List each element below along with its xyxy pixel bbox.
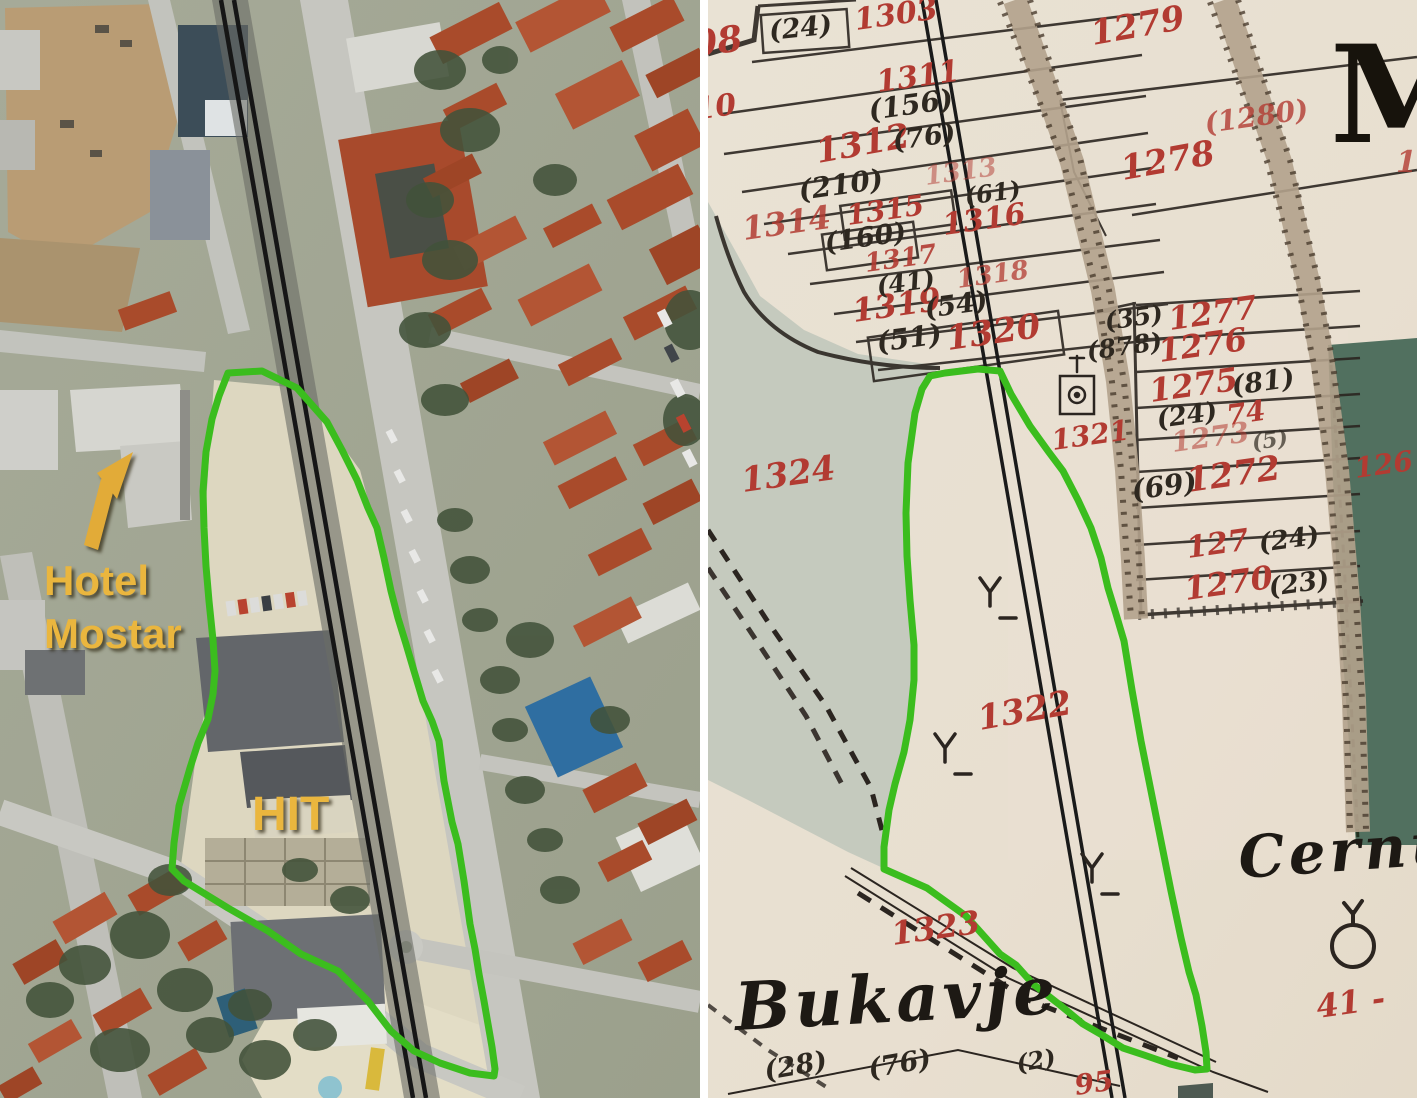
place-name-cernu: Cernu (1236, 809, 1417, 892)
parcel-number: 10 (708, 87, 739, 127)
satellite-panel: Hotel Mostar HIT (0, 0, 700, 1098)
screenshot: Hotel Mostar HIT (0, 0, 1417, 1098)
parcel-number: 95 (1072, 1064, 1115, 1098)
area-figure: (5) (1250, 425, 1289, 456)
cadastral-map-image: 08 1303 10 1311 1312 1313 1314 1315 1316… (708, 0, 1417, 1098)
parcel-number: 08 (708, 17, 745, 66)
cadastral-map-panel: 08 1303 10 1311 1312 1313 1314 1315 1316… (708, 0, 1417, 1098)
place-name-m-partial: M (1330, 15, 1417, 174)
hotel-label-line2: Mostar (44, 610, 182, 657)
satellite-image: Hotel Mostar HIT (0, 0, 700, 1098)
hit-label: HIT (252, 788, 329, 841)
area-figure: (24) (767, 10, 833, 47)
hotel-label-line1: Hotel (44, 557, 149, 604)
